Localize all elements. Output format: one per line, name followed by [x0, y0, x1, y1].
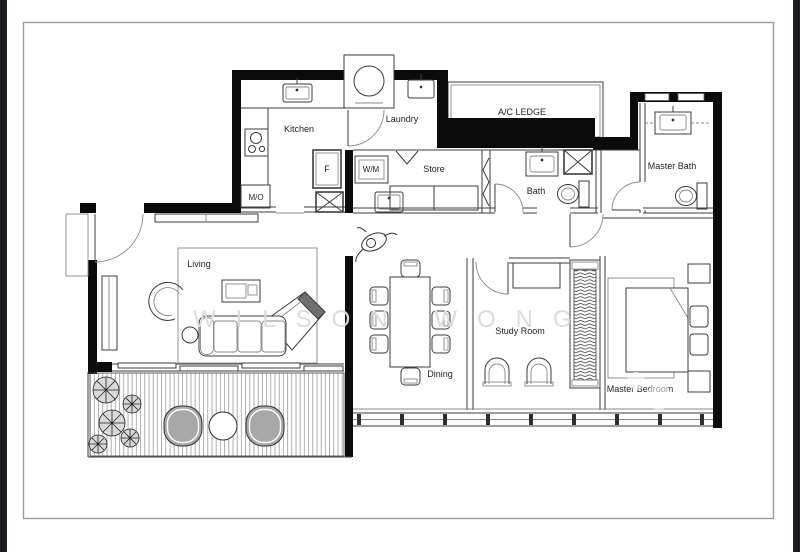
lounge-chair: [246, 406, 284, 446]
living-side-shelf: [102, 276, 117, 350]
store-shelf: [353, 150, 640, 210]
masterbath-sink-icon: [645, 106, 710, 134]
lounge-chair: [164, 406, 202, 446]
room-label-laundry: Laundry: [386, 114, 419, 124]
masterbath-toilet-icon: [676, 183, 708, 209]
study-door: [476, 262, 508, 294]
window-band: [353, 409, 713, 426]
tv-console: [155, 214, 258, 222]
service-shaft-icon: [316, 192, 343, 212]
room-label-kitchen: Kitchen: [284, 124, 314, 134]
bath-shaft-icon: [564, 150, 592, 174]
person-figure: [356, 228, 397, 262]
coffee-table: [222, 280, 260, 302]
balcony-table: [209, 412, 237, 440]
study-desk: [513, 263, 560, 288]
microwave-label: M/O: [248, 193, 263, 202]
laundry-door: [348, 110, 384, 146]
room-label-study-room: Study Room: [495, 326, 545, 336]
floorplan-page: WILSON WONG Kitchen Laundry A/C LEDGE St…: [0, 0, 800, 552]
floorplan-drawing: WILSON WONG Kitchen Laundry A/C LEDGE St…: [0, 0, 800, 552]
room-label-bath: Bath: [527, 186, 546, 196]
study-chairs: [483, 358, 553, 386]
washer-label: W/M: [363, 165, 380, 174]
fridge-label: F: [324, 164, 330, 174]
room-label-ac-ledge: A/C LEDGE: [498, 107, 546, 117]
room-label-dining: Dining: [427, 369, 453, 379]
bed: [626, 288, 708, 372]
bath-door: [495, 184, 523, 212]
utility-basin-icon: [375, 192, 403, 212]
hob-icon: [245, 129, 268, 156]
bath-toilet-icon: [558, 181, 590, 207]
bedside-tables: [688, 264, 710, 392]
room-label-master-bath: Master Bath: [648, 161, 697, 171]
masterbath-door: [612, 182, 640, 210]
room-label-store: Store: [423, 164, 445, 174]
water-heater: [344, 55, 394, 108]
room-label-living: Living: [187, 259, 211, 269]
bedroom-door: [570, 214, 603, 247]
entrance-door: [66, 214, 143, 276]
kitchen-sink-icon: [283, 78, 312, 102]
